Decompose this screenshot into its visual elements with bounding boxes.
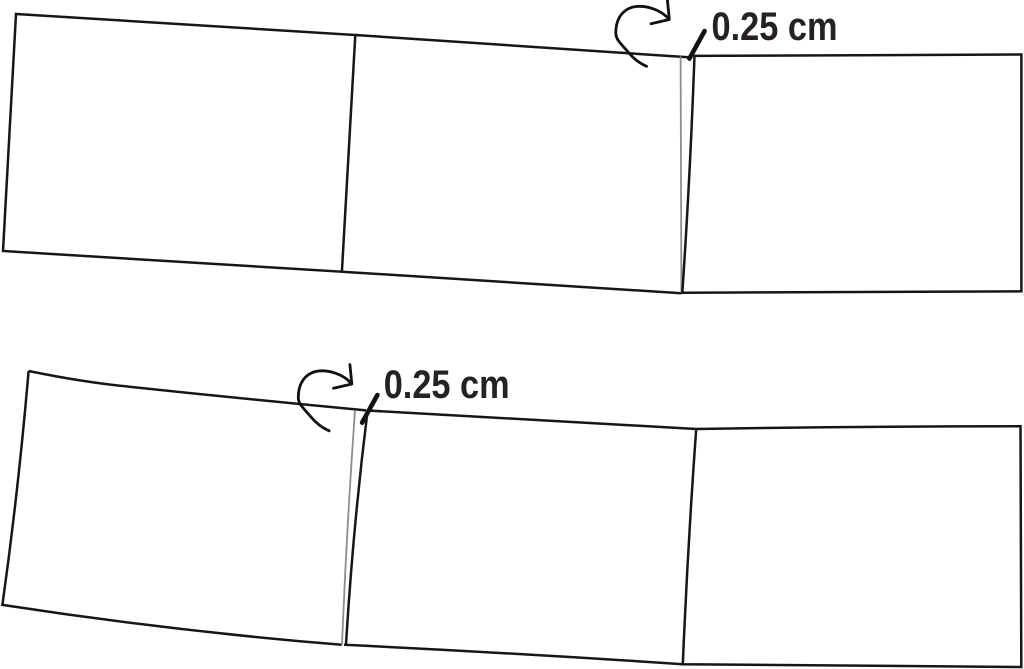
svg-text:0.25 cm: 0.25 cm [712, 5, 838, 49]
svg-text:0.25 cm: 0.25 cm [384, 363, 510, 407]
